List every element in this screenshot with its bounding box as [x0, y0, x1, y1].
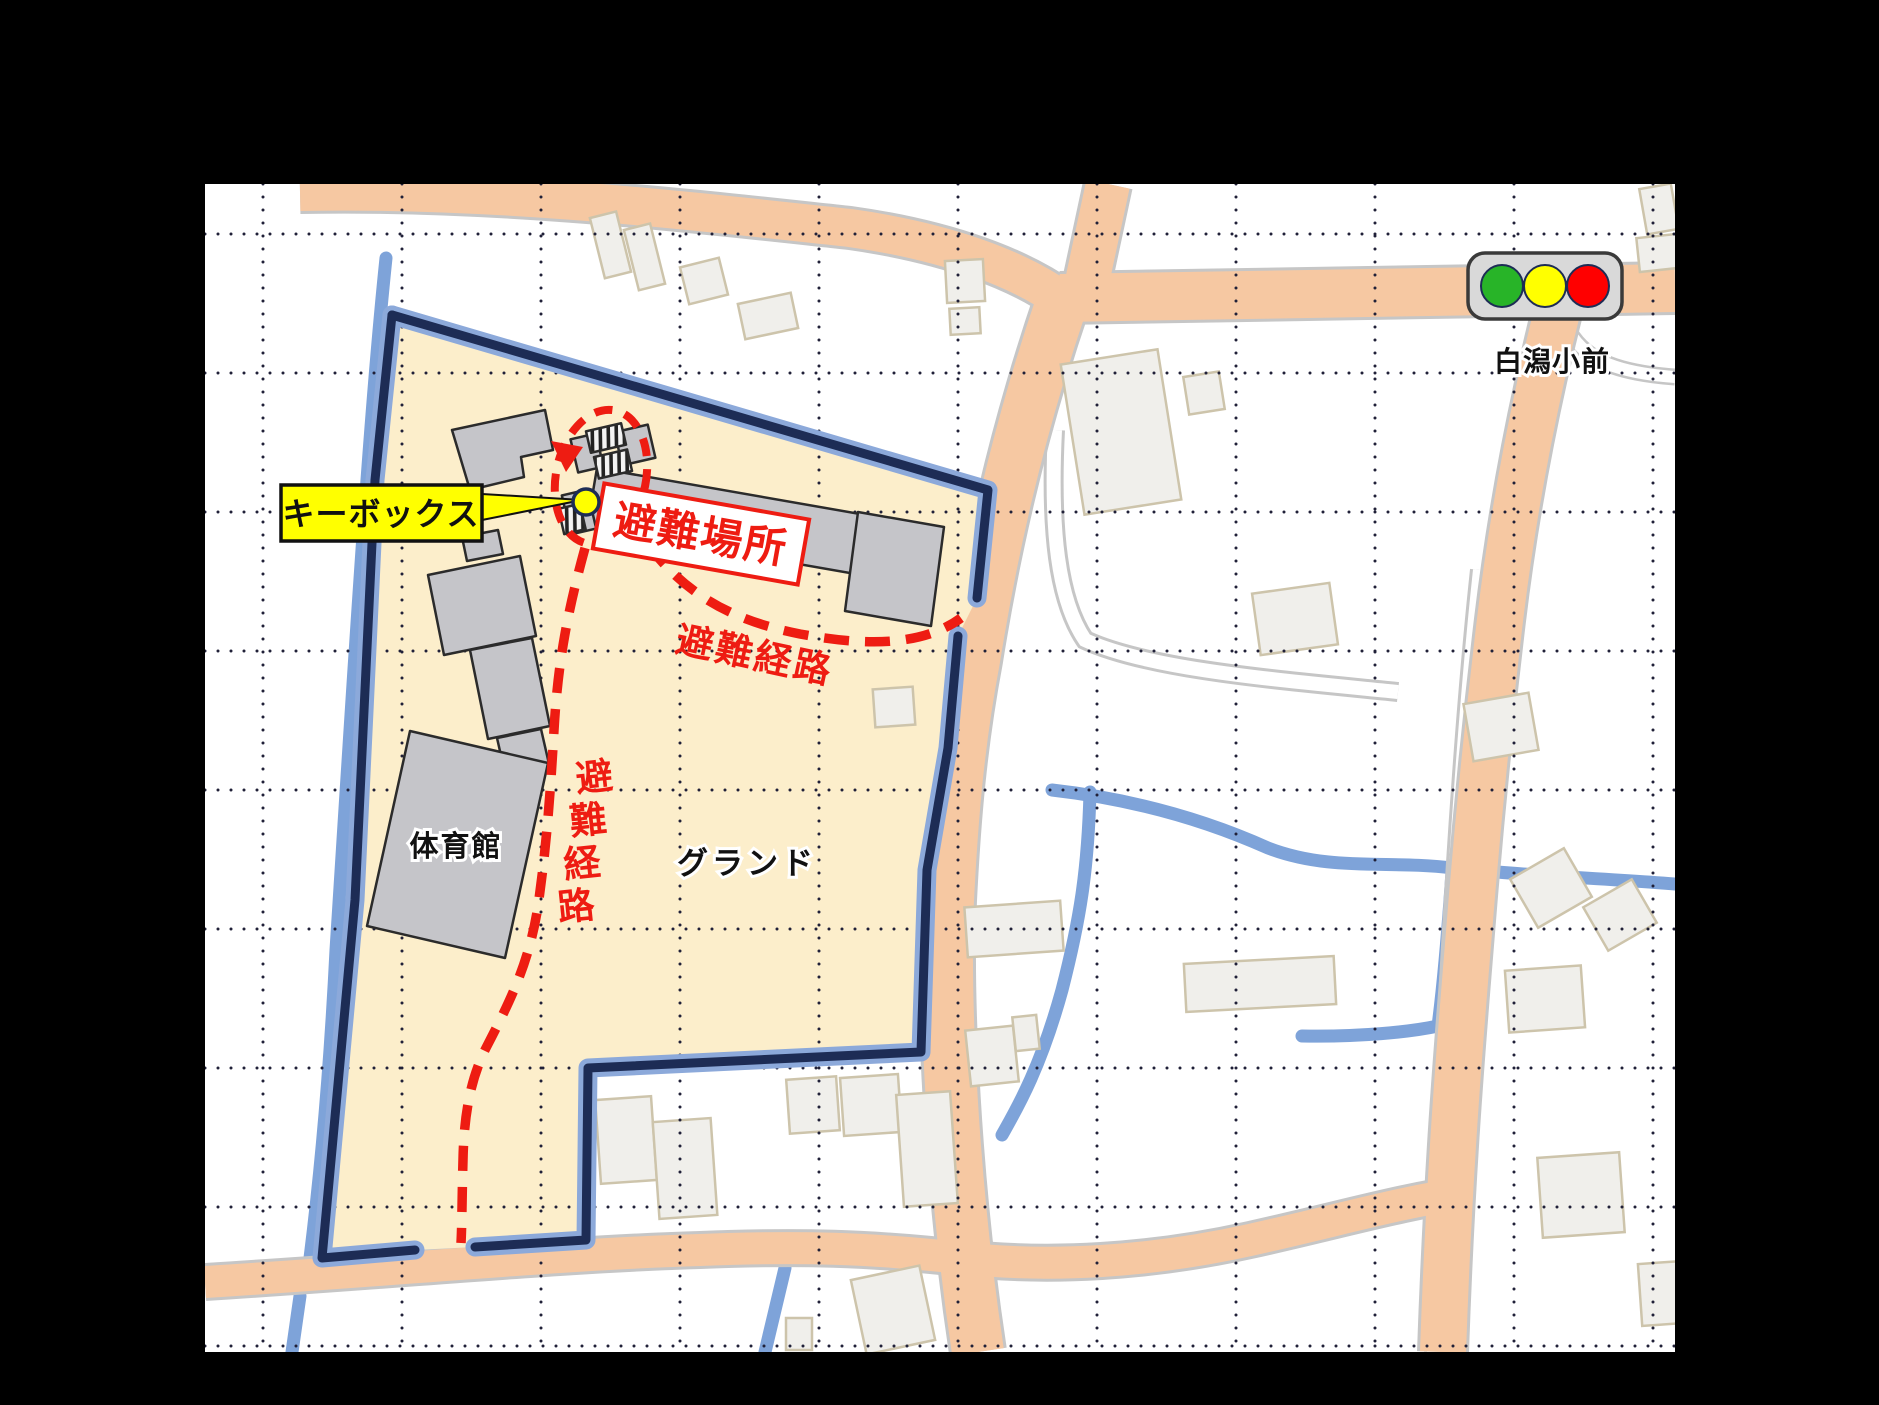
house [1183, 371, 1225, 414]
house [851, 1266, 935, 1355]
map-canvas: 避難場所 避難経路 避 難 経 路 体育館 グランド キーボックス 白潟小前 [205, 184, 1700, 1355]
green-light-icon [1481, 265, 1523, 307]
house [1639, 184, 1679, 235]
ground-label: グランド [677, 846, 817, 881]
yellow-light-icon [1524, 265, 1566, 307]
house [1636, 234, 1679, 272]
red-light-icon [1567, 265, 1609, 307]
house [786, 1076, 840, 1133]
house [1463, 693, 1538, 762]
house [945, 259, 985, 303]
house [949, 307, 980, 335]
house [965, 1026, 1019, 1087]
house [1505, 965, 1585, 1032]
house [1012, 1015, 1039, 1051]
house [595, 1096, 657, 1184]
house [653, 1118, 718, 1219]
route-char: 経 [562, 841, 604, 886]
signal-name-label: 白潟小前 [1494, 345, 1610, 377]
house [1252, 583, 1338, 655]
route-char: 難 [568, 798, 609, 843]
house [896, 1091, 958, 1206]
house [1537, 1152, 1624, 1238]
house [873, 687, 916, 728]
gym-label: 体育館 [409, 829, 502, 863]
house [840, 1074, 902, 1136]
house [680, 258, 728, 305]
keybox-marker [573, 489, 599, 515]
evacuation-map-page: 避難場所 避難経路 避 難 経 路 体育館 グランド キーボックス 白潟小前 [0, 0, 1879, 1405]
keybox-label-text: キーボックス [282, 496, 479, 532]
main-building-wing [845, 512, 944, 626]
route-char: 路 [556, 884, 598, 929]
route-char: 避 [574, 755, 615, 800]
traffic-light-icon [1468, 253, 1622, 319]
evacuation-map: 避難場所 避難経路 避 難 経 路 体育館 グランド キーボックス 白潟小前 [0, 0, 1879, 1405]
house [1184, 956, 1336, 1012]
